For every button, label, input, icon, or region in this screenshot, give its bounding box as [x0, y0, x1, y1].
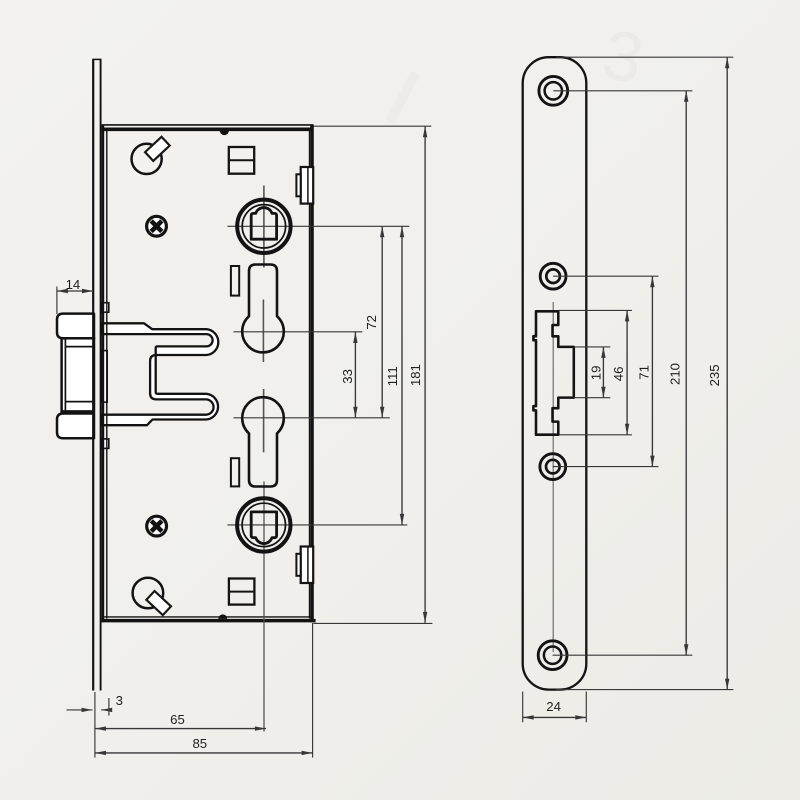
svg-text:181: 181 — [408, 364, 423, 386]
svg-text:14: 14 — [66, 277, 81, 292]
svg-text:46: 46 — [611, 367, 626, 382]
svg-text:71: 71 — [636, 365, 651, 380]
svg-text:33: 33 — [340, 369, 355, 384]
svg-text:111: 111 — [385, 366, 400, 386]
svg-text:72: 72 — [364, 315, 379, 330]
svg-text:3: 3 — [116, 693, 123, 708]
svg-text:19: 19 — [588, 366, 603, 381]
svg-text:85: 85 — [192, 736, 207, 751]
svg-text:24: 24 — [546, 699, 561, 714]
svg-text:210: 210 — [667, 363, 682, 385]
svg-text:235: 235 — [707, 364, 722, 386]
svg-text:65: 65 — [170, 712, 185, 727]
